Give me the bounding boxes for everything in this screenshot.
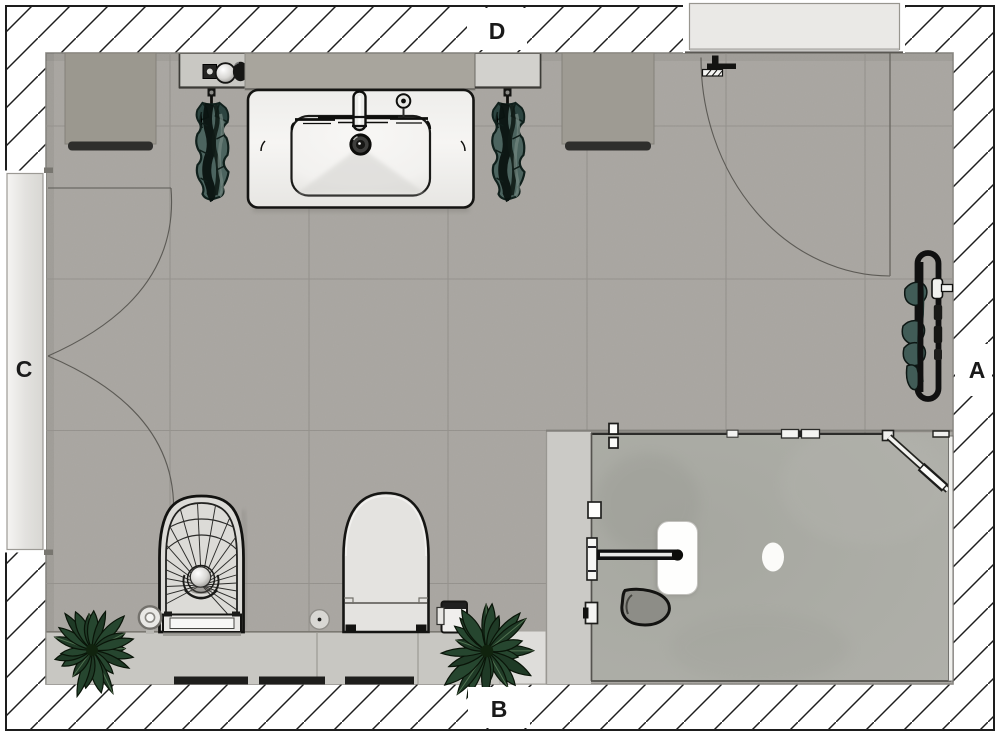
svg-text:B: B (491, 696, 508, 722)
svg-text:C: C (16, 356, 33, 382)
svg-text:A: A (969, 357, 986, 383)
svg-text:D: D (489, 18, 506, 44)
